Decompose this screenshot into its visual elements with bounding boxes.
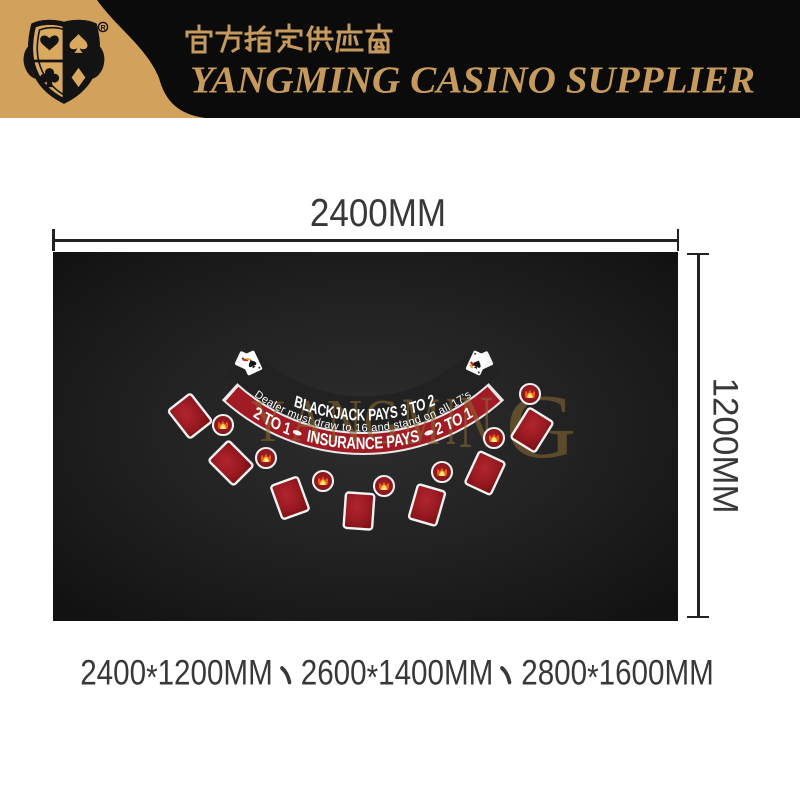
svg-text:YANGMING CASINO SUPPLIER: YANGMING CASINO SUPPLIER bbox=[190, 60, 755, 102]
svg-text:R: R bbox=[100, 25, 105, 32]
